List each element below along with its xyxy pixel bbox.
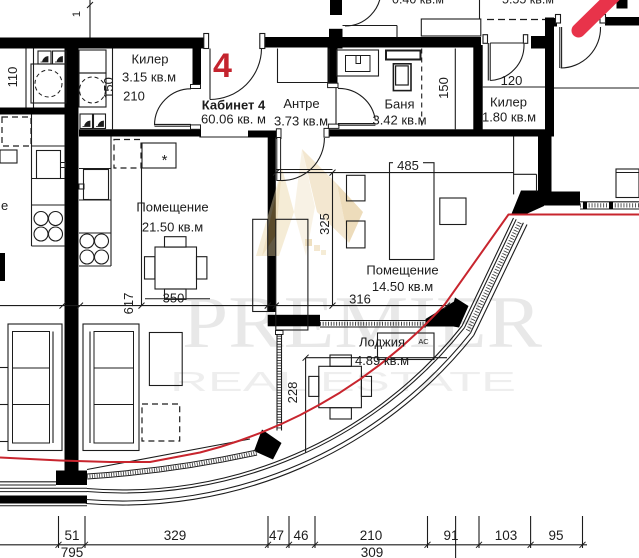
svg-text:4.89 кв.м: 4.89 кв.м — [355, 353, 409, 368]
svg-text:3.15 кв.м: 3.15 кв.м — [122, 70, 176, 85]
svg-text:Кабинет 4: Кабинет 4 — [202, 98, 266, 113]
svg-text:14.50 кв.м: 14.50 кв.м — [372, 279, 433, 294]
svg-text:210: 210 — [123, 89, 145, 104]
svg-text:210: 210 — [360, 528, 383, 543]
svg-text:60.06 кв. м: 60.06 кв. м — [201, 112, 266, 127]
svg-text:103: 103 — [495, 528, 518, 543]
svg-text:5.55 кв.м: 5.55 кв.м — [502, 0, 554, 7]
svg-text:91: 91 — [443, 528, 458, 543]
svg-text:Баня: Баня — [385, 97, 415, 112]
svg-text:1: 1 — [71, 11, 83, 17]
svg-text:309: 309 — [361, 545, 384, 558]
svg-text:4: 4 — [213, 47, 232, 85]
svg-text:Килер: Килер — [490, 95, 527, 110]
svg-text:795: 795 — [61, 545, 84, 558]
svg-text:3.42 кв.м: 3.42 кв.м — [372, 113, 426, 128]
svg-text:Антре: Антре — [283, 96, 319, 111]
svg-text:е: е — [1, 198, 8, 213]
svg-text:316: 316 — [349, 292, 371, 307]
svg-text:Помещение: Помещение — [366, 263, 438, 278]
svg-text:51: 51 — [64, 528, 79, 543]
svg-text:110: 110 — [5, 67, 20, 88]
svg-text:REAL ESTATE: REAL ESTATE — [170, 366, 516, 397]
svg-text:150: 150 — [436, 77, 451, 99]
svg-text:350: 350 — [163, 291, 185, 306]
svg-text:АС: АС — [418, 337, 429, 346]
svg-text:325: 325 — [317, 213, 332, 235]
svg-text:47: 47 — [269, 528, 284, 543]
svg-text:120: 120 — [501, 73, 523, 88]
svg-text:Лоджия: Лоджия — [359, 335, 405, 350]
svg-text:46: 46 — [293, 528, 308, 543]
svg-text:0.40 кв.м: 0.40 кв.м — [392, 0, 444, 7]
svg-text:Помещение: Помещение — [136, 200, 208, 215]
svg-text:95: 95 — [548, 528, 563, 543]
svg-text:485: 485 — [397, 158, 419, 173]
svg-text:3.73 кв.м: 3.73 кв.м — [274, 114, 328, 129]
svg-text:1.80 кв.м: 1.80 кв.м — [482, 110, 536, 125]
svg-text:228: 228 — [285, 382, 300, 404]
svg-text:Килер: Килер — [132, 52, 169, 67]
svg-text:*: * — [162, 152, 168, 169]
svg-text:21.50 кв.м: 21.50 кв.м — [142, 220, 203, 235]
svg-text:329: 329 — [164, 528, 187, 543]
svg-text:617: 617 — [121, 293, 136, 315]
svg-text:150: 150 — [101, 77, 116, 99]
